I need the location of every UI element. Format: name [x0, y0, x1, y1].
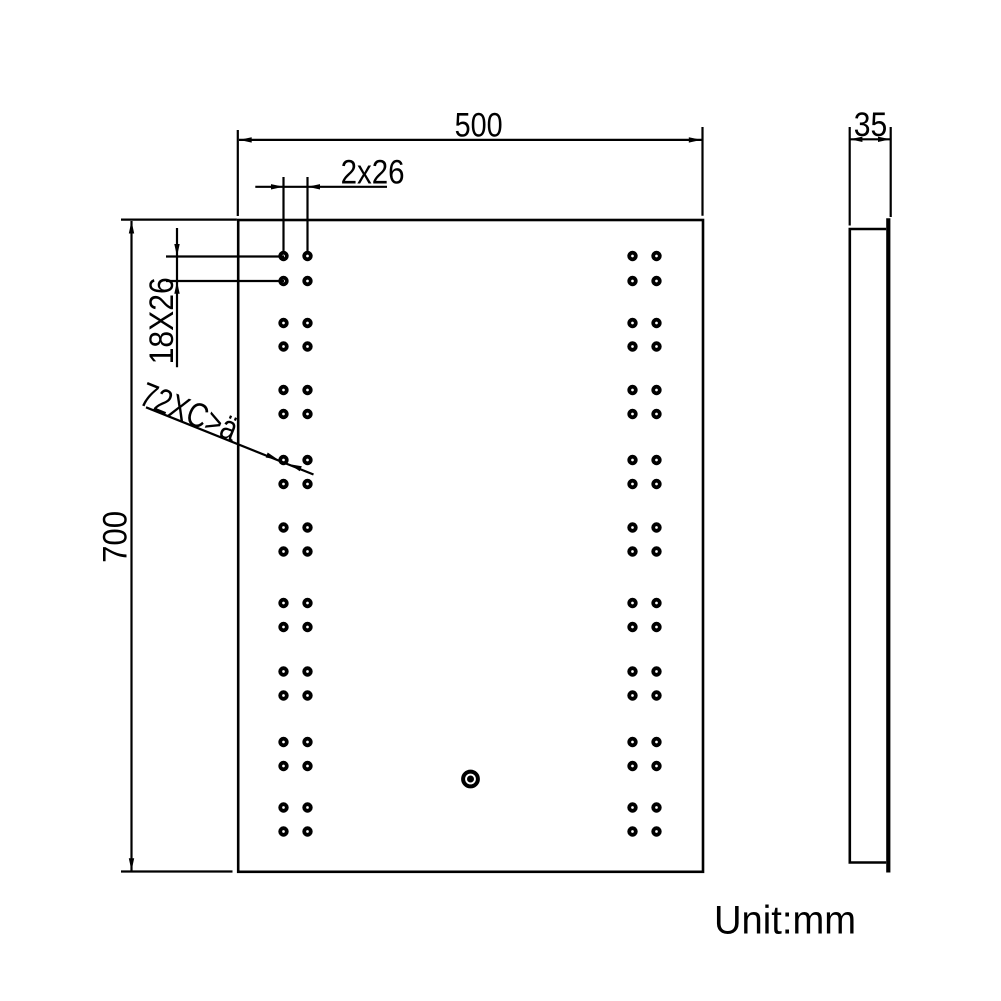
svg-text:700: 700 [97, 511, 135, 563]
svg-text:Unit:mm: Unit:mm [714, 899, 856, 943]
svg-text:18X26: 18X26 [143, 277, 181, 364]
svg-text:35: 35 [854, 106, 888, 144]
svg-text:500: 500 [455, 106, 503, 144]
svg-text:2x26: 2x26 [341, 153, 405, 191]
